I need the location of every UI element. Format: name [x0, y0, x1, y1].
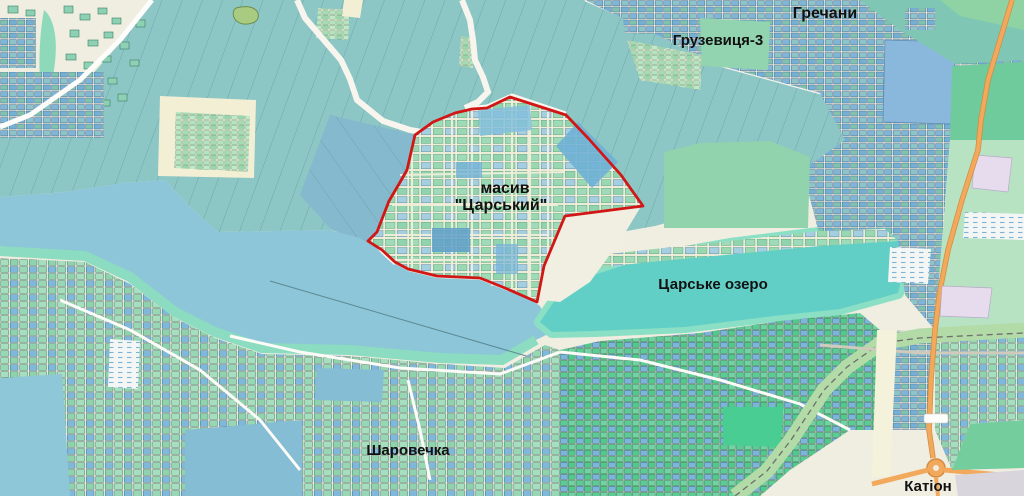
svg-text:Катіон: Катіон — [904, 478, 951, 495]
svg-text:Царське озеро: Царське озеро — [658, 276, 768, 293]
svg-text:Шаровечка: Шаровечка — [366, 442, 450, 459]
svg-text:Грузевиця-3: Грузевиця-3 — [673, 32, 763, 49]
svg-text:масив: масив — [480, 180, 529, 197]
svg-text:"Царський": "Царський" — [455, 197, 548, 214]
svg-text:Гречани: Гречани — [793, 5, 857, 22]
